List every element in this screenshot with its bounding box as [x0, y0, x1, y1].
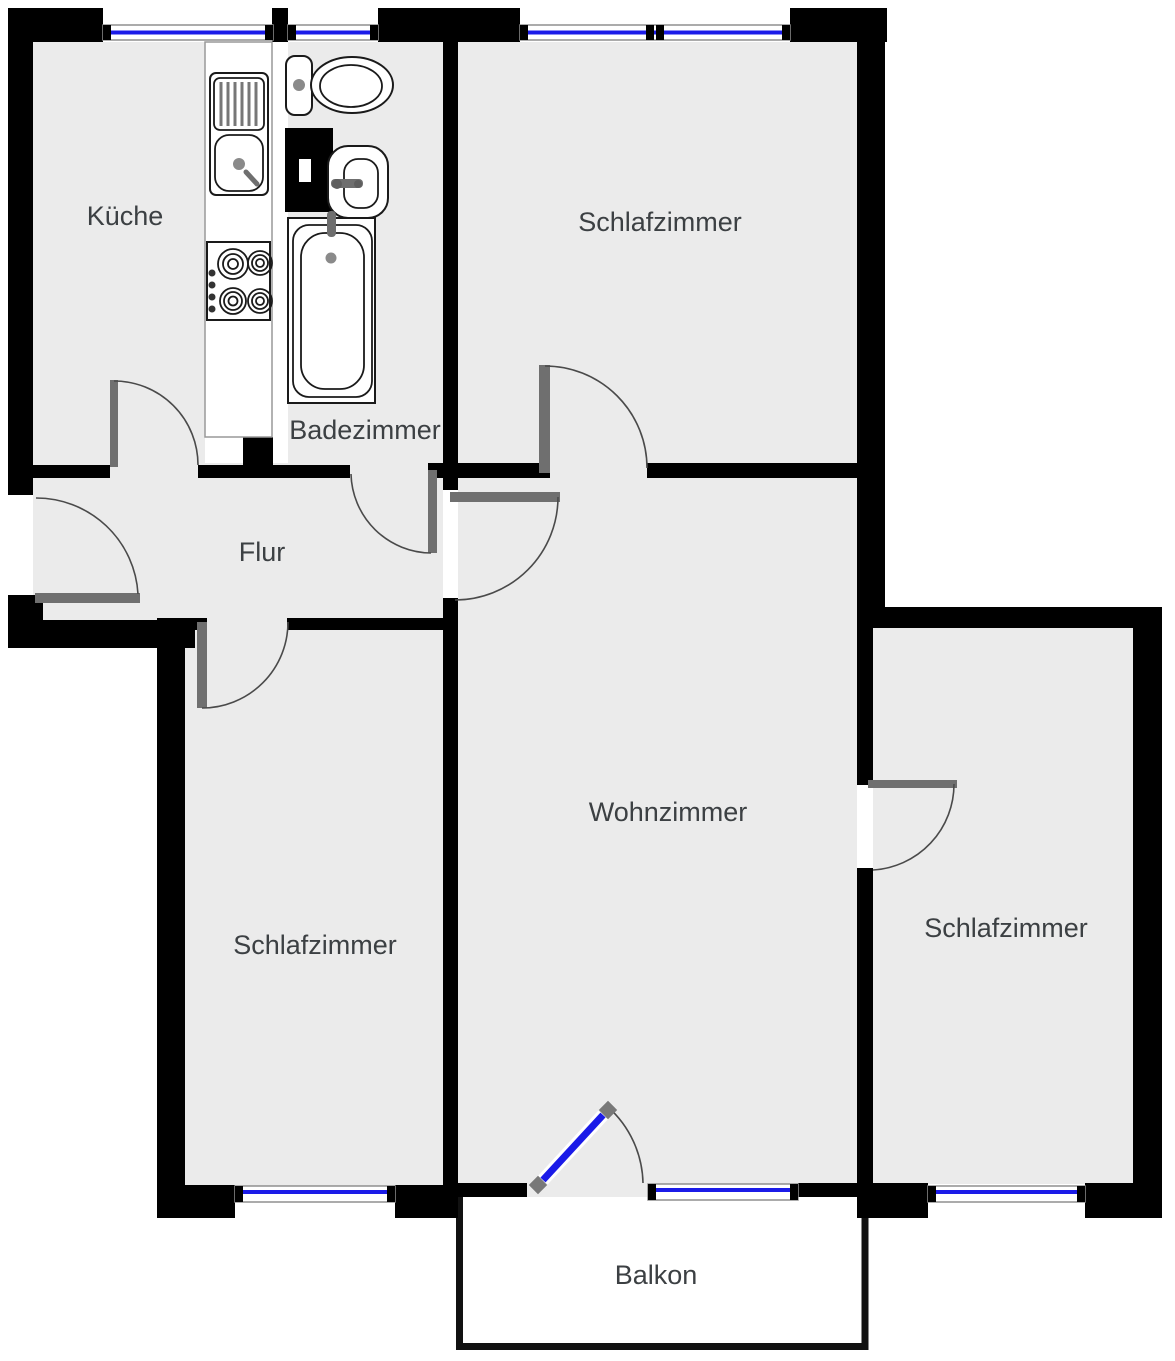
bedroom-left-floor: [185, 630, 443, 1186]
label-badezimmer: Badezimmer: [289, 415, 441, 445]
window-bedroom-top: [520, 25, 790, 40]
wall-bedroom-left-left: [157, 620, 185, 1218]
floor-plan-canvas: Küche Badezimmer Schlafzimmer Flur Wohnz…: [0, 0, 1175, 1361]
label-balkon: Balkon: [615, 1260, 698, 1290]
window-livingroom: [648, 1184, 798, 1200]
label-flur: Flur: [239, 537, 286, 567]
wall-top-pier: [272, 8, 288, 42]
door-leaf: [539, 365, 550, 473]
wall-bedroom-right-bottom-1: [857, 1183, 928, 1218]
wall-left-outer: [8, 8, 33, 495]
wall-bedroom-left-bottom-1: [157, 1185, 235, 1218]
label-schlafzimmer-right: Schlafzimmer: [924, 913, 1088, 943]
door-leaf: [110, 380, 118, 467]
wall-living-bedroom-divider-lower: [857, 868, 873, 1217]
wall-bedroom-top-bottom-right: [647, 463, 858, 478]
door-leaf: [428, 470, 437, 553]
wall-right-outer-top: [857, 40, 885, 478]
wall-living-bedroom-divider-upper: [857, 628, 873, 785]
toilet-icon: [286, 56, 393, 115]
wall-living-right: [857, 478, 885, 628]
label-wohnzimmer: Wohnzimmer: [589, 797, 748, 827]
wall-hall-living-divider: [443, 598, 458, 1197]
window-kitchen: [103, 25, 273, 40]
wall-bath-bottom: [273, 465, 350, 478]
wall-kitchen-bottom: [33, 465, 110, 478]
label-schlafzimmer-left: Schlafzimmer: [233, 930, 397, 960]
door-leaf: [450, 492, 560, 502]
wall-under-counter: [243, 437, 273, 478]
wall-top-right: [790, 8, 887, 42]
wall-living-bottom-2: [798, 1183, 860, 1197]
window-bedroom-right: [928, 1186, 1085, 1202]
washbasin-icon: [328, 146, 388, 218]
label-schlafzimmer-top: Schlafzimmer: [578, 207, 742, 237]
bathtub-icon: [288, 211, 375, 403]
wall-right-outer: [1133, 607, 1162, 1217]
door-leaf: [197, 622, 207, 708]
bedroom-top-floor: [458, 42, 857, 463]
floor-plan: Küche Badezimmer Schlafzimmer Flur Wohnz…: [0, 0, 1175, 1361]
kitchen-stove-icon: [207, 242, 272, 320]
kitchen-sink-icon: [210, 73, 268, 195]
door-leaf: [868, 780, 957, 788]
wall-corner-nub: [443, 463, 458, 490]
wall-living-bottom-1: [443, 1183, 527, 1197]
bedroom-right-floor: [873, 628, 1133, 1184]
wall-bath-bedroom-divider: [443, 40, 458, 465]
wall-bedroom-left-top-2: [287, 618, 458, 630]
livingroom-floor: [458, 463, 857, 1197]
door-leaf: [35, 593, 140, 603]
wall-kitchen-bottom-2: [198, 465, 243, 478]
kitchen-floor: [33, 42, 205, 465]
kitchen-fixtures: [205, 42, 272, 437]
window-bedroom-left: [235, 1186, 395, 1202]
duct-shaft: [285, 128, 333, 212]
wall-top-middle: [378, 8, 520, 42]
window-bathroom: [288, 25, 378, 40]
wall-bedroom-right-bottom-2: [1085, 1183, 1162, 1218]
wall-bedroom-right-top: [885, 607, 1162, 628]
label-kueche: Küche: [87, 201, 164, 231]
